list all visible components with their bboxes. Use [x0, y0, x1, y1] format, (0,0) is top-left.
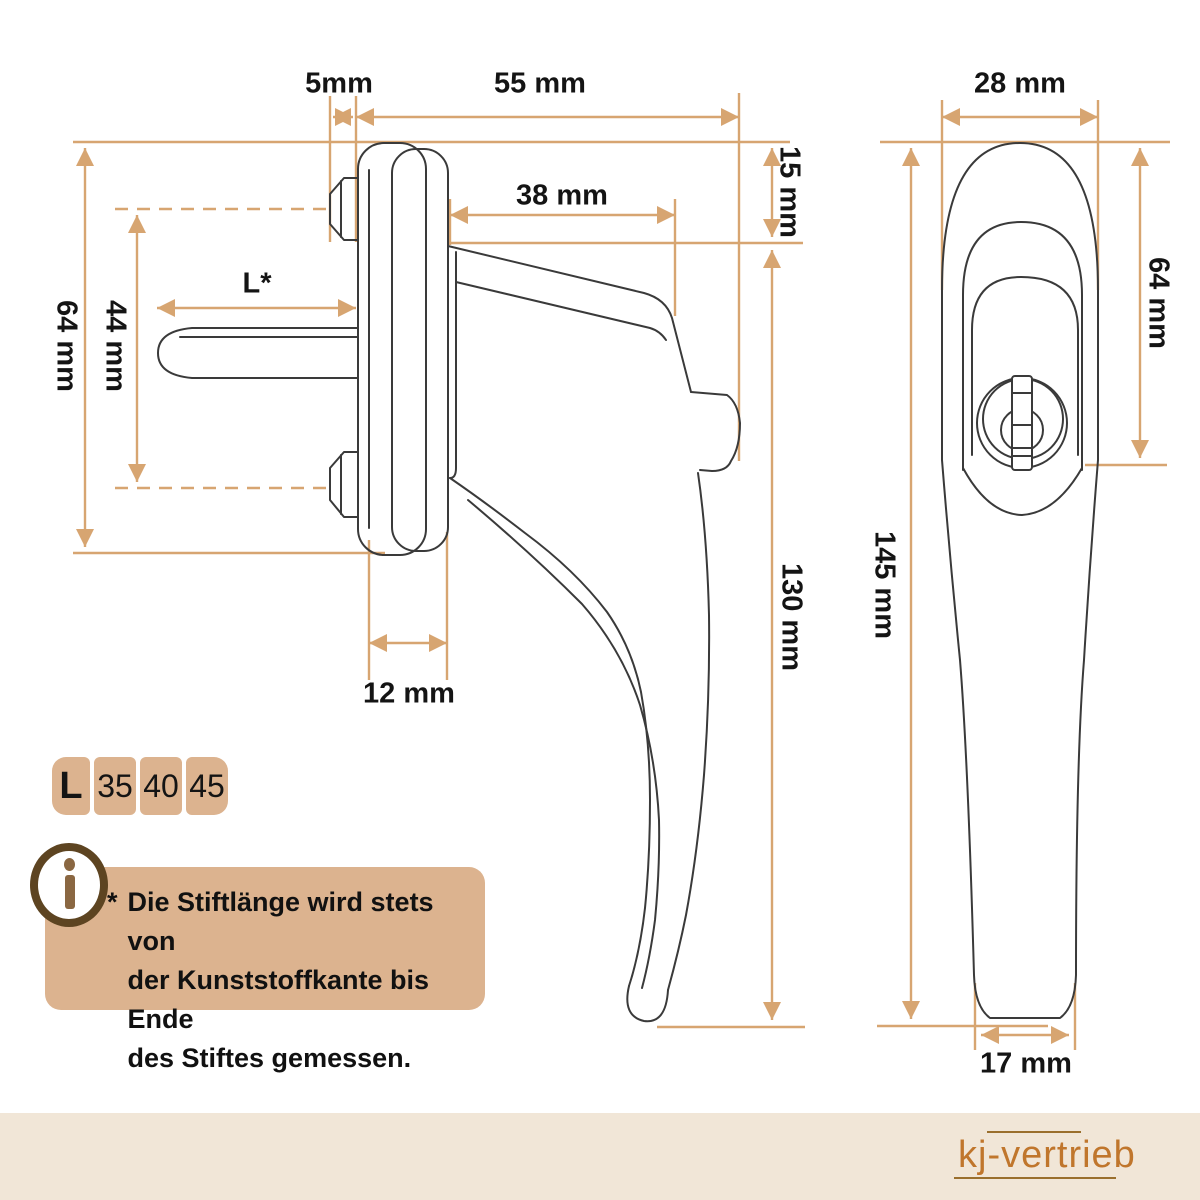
lower-stub — [330, 452, 358, 517]
dim-label-total-height: 145 mm — [868, 531, 901, 639]
front-collar-bottom — [963, 468, 1082, 515]
brand-overline — [987, 1131, 1081, 1133]
dim-label-rosette-depth: 12 mm — [363, 678, 455, 711]
dim-label-handle-height: 130 mm — [775, 563, 808, 671]
grip-outer-edge — [668, 473, 709, 990]
dim-label-neck-length: 38 mm — [516, 180, 608, 213]
spindle — [158, 328, 358, 378]
length-option-40: 40 — [140, 757, 182, 815]
dim-label-handle-width: 28 mm — [974, 68, 1066, 101]
dim-label-upper-height: 64 mm — [1142, 257, 1175, 349]
dim-label-spindle-length: L* — [243, 268, 272, 301]
diagram-page: 5mm 55 mm 38 mm 15 mm 130 mm 64 mm 44 mm… — [0, 0, 1200, 1200]
dim-label-rosette-height: 64 mm — [50, 300, 83, 392]
info-note: * Die Stiftlänge wird stets von der Kuns… — [107, 883, 485, 1078]
rosette-cover — [392, 149, 448, 551]
brand-logo: kj-vertrieb — [958, 1134, 1136, 1177]
neck-top-edge — [448, 246, 691, 392]
info-icon — [30, 843, 108, 927]
brand-underline — [954, 1177, 1116, 1179]
dim-label-pin-offset: 5mm — [305, 68, 373, 101]
info-note-line-3: des Stiftes gemessen. — [128, 1039, 485, 1078]
front-outline — [942, 143, 1098, 1018]
info-note-marker: * — [107, 883, 118, 1078]
neck-left-edge — [450, 252, 456, 478]
drive-knob — [691, 392, 740, 471]
info-box: * Die Stiftlänge wird stets von der Kuns… — [45, 867, 485, 1010]
dim-label-screw-spacing: 44 mm — [99, 300, 132, 392]
length-option-35: 35 — [94, 757, 136, 815]
upper-stub — [330, 178, 358, 240]
dim-label-handle-depth: 55 mm — [494, 68, 586, 101]
length-option-45: 45 — [186, 757, 228, 815]
length-table: L 35 40 45 — [52, 757, 228, 815]
footer-strip: kj-vertrieb — [0, 1113, 1200, 1200]
dim-label-grip-width: 17 mm — [980, 1048, 1072, 1081]
info-note-line-1: Die Stiftlänge wird stets von — [128, 883, 485, 961]
handle-front-view — [942, 143, 1098, 1018]
grip-detail-line — [468, 500, 659, 988]
length-table-header: L — [52, 757, 90, 815]
info-icon-dot — [64, 858, 75, 871]
info-note-line-2: der Kunststoffkante bis Ende — [128, 961, 485, 1039]
info-icon-stem — [65, 875, 75, 909]
grip-tip — [627, 986, 668, 1021]
dim-label-cover-height: 15 mm — [773, 146, 806, 238]
